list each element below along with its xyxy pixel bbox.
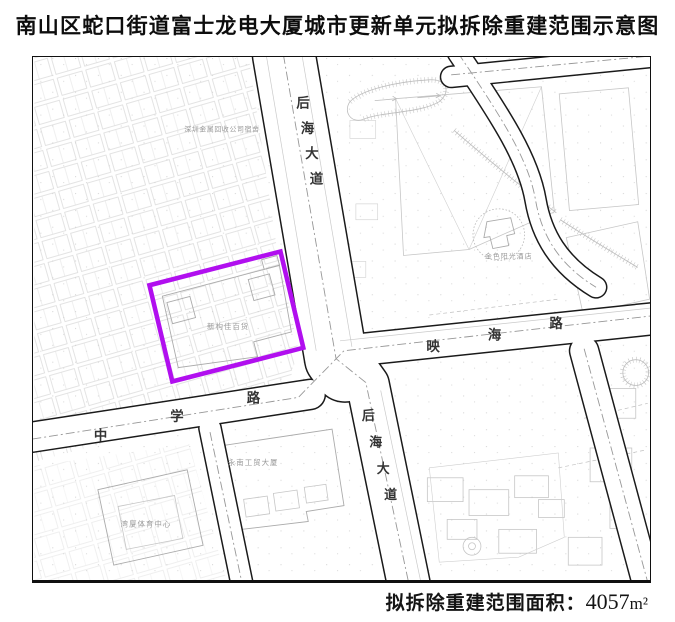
area-note-label: 拟拆除重建范围面积： (386, 593, 586, 614)
area-note-unit: m² (630, 594, 648, 613)
building-label-golden-sun-hotel: 金色阳光酒店 (485, 251, 532, 260)
building-label-wanxia-sports: 湾厦体育中心 (121, 518, 171, 528)
area-note-value: 4057 (586, 589, 630, 614)
area-note: 拟拆除重建范围面积：4057m² (0, 588, 648, 615)
building-label-scope-store: 新构佳百货 (207, 321, 249, 331)
building-label-yongnan-trade: 永南工贸大厦 (228, 457, 278, 467)
page-title: 南山区蛇口街道富士龙电大厦城市更新单元拟拆除重建范围示意图 (0, 10, 675, 40)
building-label-metal-recycling: 深圳金属回收公司宿舍 (184, 124, 259, 133)
map-canvas: 后海大道后海大道映海路中学路新构佳百货深圳金属回收公司宿舍永南工贸大厦湾厦体育中… (32, 56, 651, 583)
planning-map: 后海大道后海大道映海路中学路新构佳百货深圳金属回收公司宿舍永南工贸大厦湾厦体育中… (33, 57, 650, 580)
